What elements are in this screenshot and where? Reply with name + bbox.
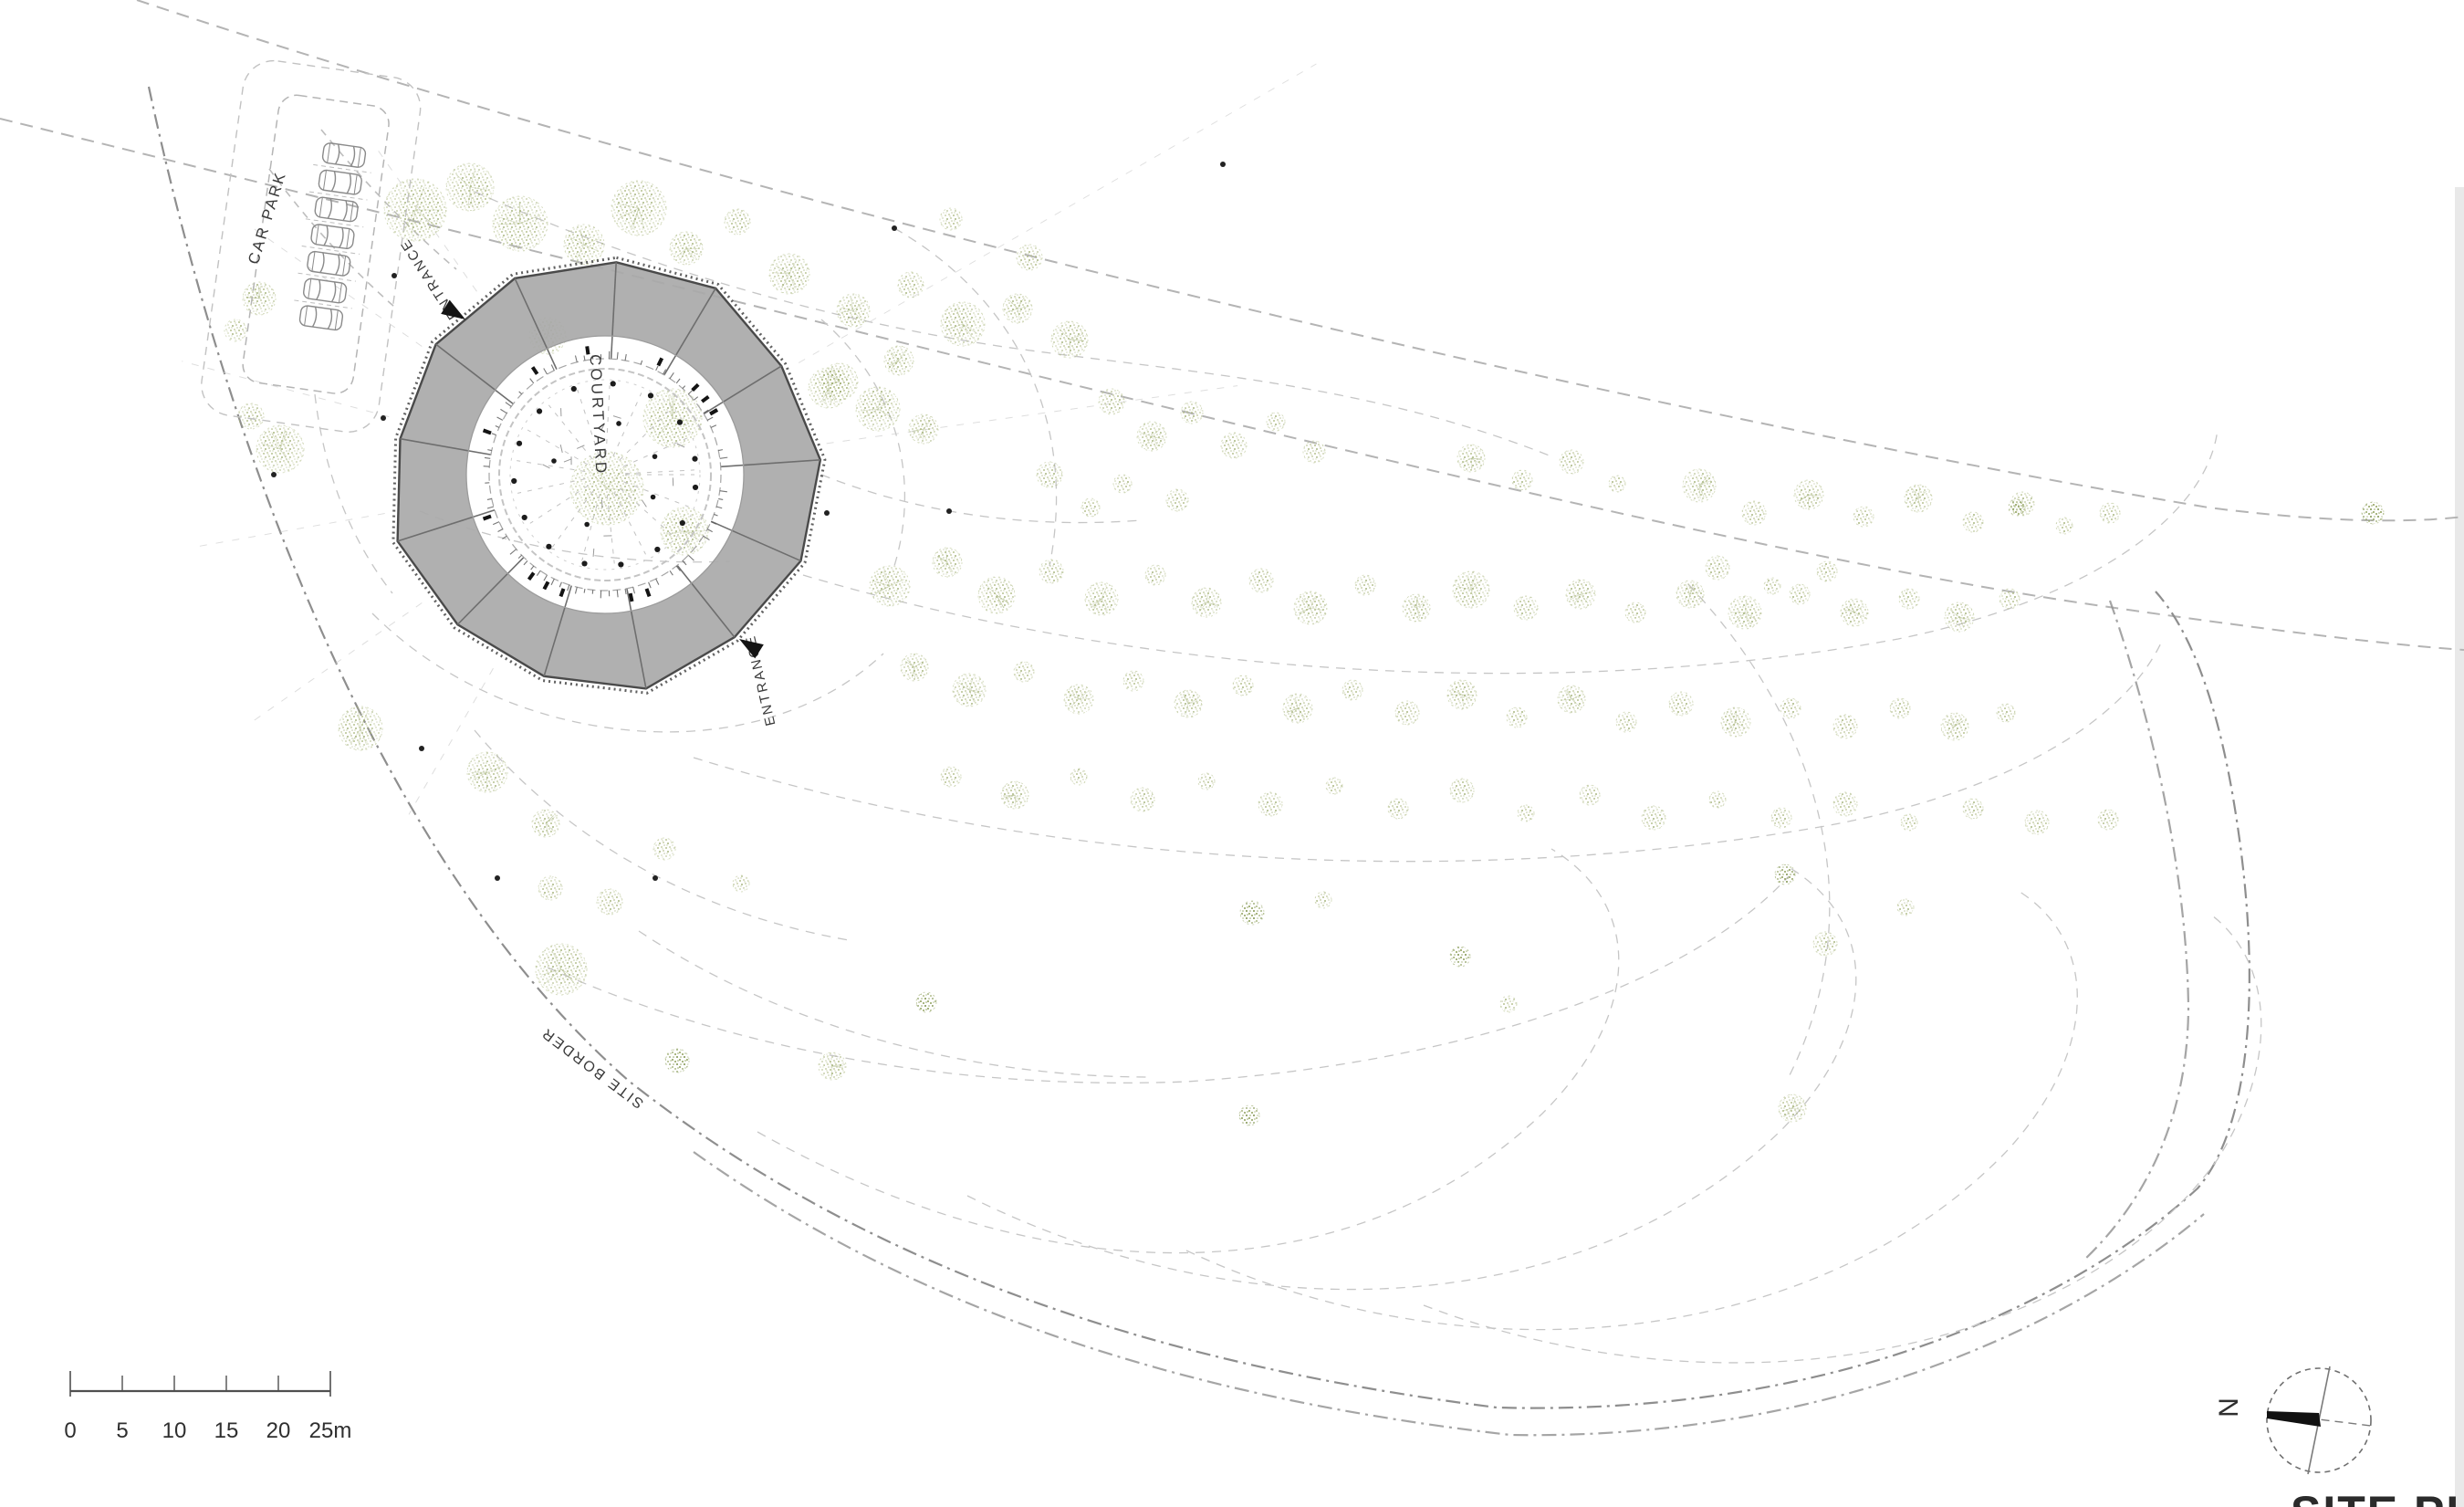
scale-tick-0: 0 [64,1418,76,1443]
tree [661,508,708,555]
tree [1500,996,1517,1012]
tree [1899,589,1919,609]
tree [1897,899,1914,916]
tree [493,196,548,251]
tree [224,319,246,341]
tree [597,889,622,915]
tree [1512,470,1532,490]
tree [1267,413,1285,431]
tree [1997,704,2015,722]
scale-bar: 0 5 10 15 20 25m [64,1371,351,1443]
car-park-label: CAR PARK [245,169,289,267]
tree [1853,507,1874,527]
tree [384,179,446,241]
scale-tick-20: 20 [266,1418,291,1443]
tree [1779,1094,1806,1122]
tree [1303,441,1325,463]
tree [1258,792,1282,816]
tree-dark [1450,947,1470,967]
tree [1780,698,1801,718]
tree [1085,582,1118,615]
car [309,168,371,200]
tree [1963,512,1983,532]
tree [1123,671,1143,691]
tree [536,944,587,995]
tree-dark [1240,901,1264,925]
scale-tick-25: 25m [309,1418,352,1443]
tree-dark [1239,1105,1259,1125]
site-border-label: SITE BORDER [538,1024,647,1111]
tree [1833,715,1857,738]
tree [1817,561,1837,581]
tree [238,403,264,429]
tree [1742,501,1766,525]
tree [256,425,304,473]
tree [1453,571,1489,608]
tree [1294,591,1327,624]
tree [1001,781,1028,809]
car [299,305,344,330]
tree [1249,569,1273,592]
road-lines [0,0,2464,650]
car [306,195,367,227]
tree [837,294,870,327]
tree [1771,808,1791,828]
scale-tick-10: 10 [162,1418,187,1443]
tree [1580,785,1600,805]
tree [1706,556,1729,580]
tree [1113,475,1132,493]
tree [243,282,276,315]
tree [1395,701,1419,725]
tree [1457,445,1485,472]
tree [941,767,961,787]
tree [1017,245,1042,270]
tree [1175,690,1202,717]
tree [2056,518,2072,534]
tree [1081,498,1100,517]
scale-tick-15: 15 [214,1418,239,1443]
tree-dark [2362,502,2384,524]
tree [1709,791,1726,808]
tree [1901,814,1917,831]
tree [819,1052,846,1080]
tree [769,254,809,294]
tree [2100,503,2120,523]
tree [2025,811,2049,834]
car [313,141,374,173]
tree [1315,892,1331,908]
tree [1507,707,1527,727]
tree [1403,594,1430,622]
tree [1518,805,1534,822]
tree [1890,698,1910,718]
tree [1166,489,1188,511]
tree [1616,712,1636,732]
car [302,223,363,255]
scale-tick-5: 5 [116,1418,128,1443]
tree [1963,799,1983,819]
tree [1131,788,1154,811]
site-plan-canvas: CAR PARK COURTYARD ENTRANCE ENTRANCE SIT… [0,0,2464,1507]
tree [978,577,1015,613]
tree [809,368,849,408]
tree [532,810,559,837]
tree [1355,575,1375,595]
page-edge-strip [2455,187,2464,1507]
tree [1145,565,1165,585]
tree [1669,692,1693,716]
tree [1728,596,1761,629]
entrance-lower: ENTRANCE [735,632,778,727]
tree [1388,799,1408,819]
tree [611,181,666,235]
tree [1326,778,1342,794]
tree [1198,773,1215,790]
tree [2098,810,2118,830]
tree [339,706,382,750]
tree [1037,462,1062,487]
tree [467,752,507,792]
tree [1721,707,1750,737]
tree [1192,588,1221,617]
tree [1794,480,1823,509]
tree [1813,932,1837,956]
tree [1221,433,1247,458]
tree [933,548,962,577]
tree [1945,602,1974,632]
contour-curves [315,192,2261,1363]
tree [1566,580,1595,609]
tree [1137,422,1166,451]
north-label: N [2214,1397,2244,1418]
tree [1833,792,1857,816]
tree-dark [665,1049,689,1073]
tree [564,225,604,265]
tree [898,272,924,298]
tree [1764,578,1780,594]
tree [1841,599,1868,626]
tree [940,208,962,230]
car [298,249,360,281]
tree [1999,589,2020,609]
tree [538,876,562,900]
tree [725,209,750,235]
tree [1642,806,1665,830]
north-compass: N [2214,1366,2371,1474]
tree [1051,321,1088,358]
tree-dark [1775,864,1795,884]
tree [653,838,675,860]
drawing-title: SITE PLAN [2291,1487,2464,1507]
tree [901,654,928,681]
tree [733,875,749,892]
parked-cars [291,141,374,332]
tree [1233,675,1253,696]
car [294,277,355,309]
tree [1014,662,1034,682]
tree [1099,389,1124,414]
tree [1003,294,1032,323]
tree [1676,581,1704,608]
tree [909,414,938,444]
tree [1514,596,1538,620]
tree [1625,602,1645,623]
tree [1683,469,1716,502]
tree [1447,680,1477,709]
tree [884,346,914,375]
tree [446,163,494,211]
tree [1790,584,1810,604]
tree [1181,402,1203,424]
tree [1039,560,1063,583]
tree [670,232,703,265]
tree [1609,476,1625,492]
tree [856,387,900,431]
tree [1342,680,1363,700]
entrance-upper: ENTRANCE [397,235,470,327]
tree [1450,779,1474,802]
tree [870,566,910,606]
site-border-lines [149,87,2250,1435]
tree [1070,769,1087,785]
tree [1560,450,1583,474]
tree [953,674,986,706]
tree [1064,685,1093,714]
tree-dark [2009,499,2025,516]
tree [941,302,985,346]
car-park: CAR PARK [197,57,424,435]
tree [1905,485,1932,512]
tree [1283,694,1312,723]
north-needle-icon [2267,1411,2321,1427]
tree [1558,685,1585,713]
tree-dark [916,992,936,1012]
tree [1941,713,1968,740]
